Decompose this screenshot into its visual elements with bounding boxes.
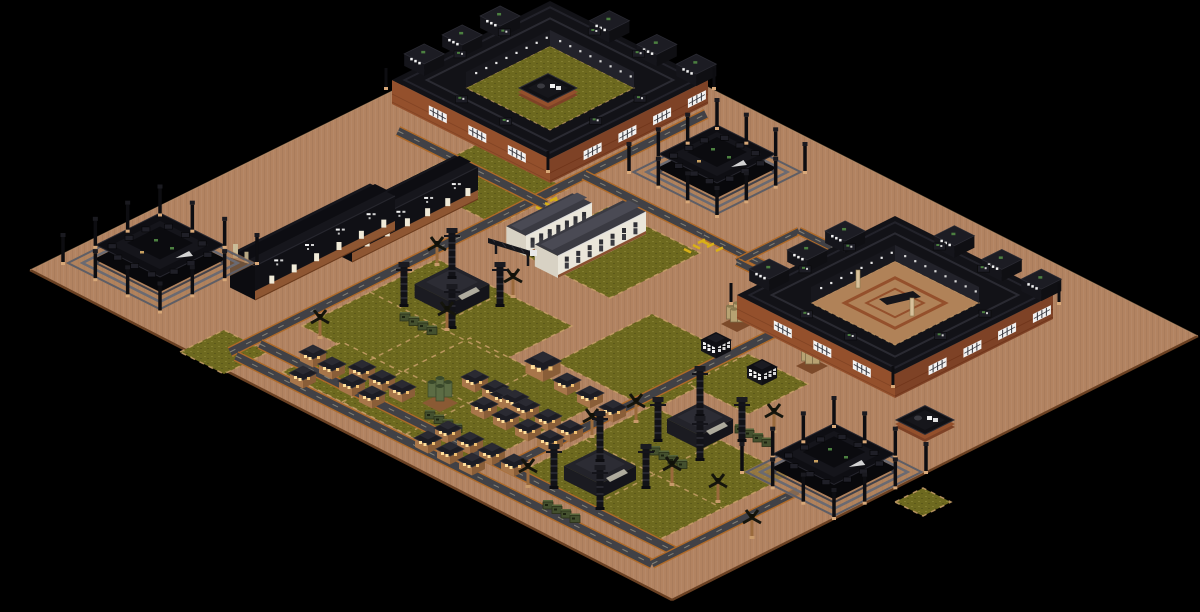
game-viewport: Isometric strategy game map - desert ind… [0, 0, 1200, 612]
isometric-map-canvas[interactable] [0, 0, 1200, 612]
